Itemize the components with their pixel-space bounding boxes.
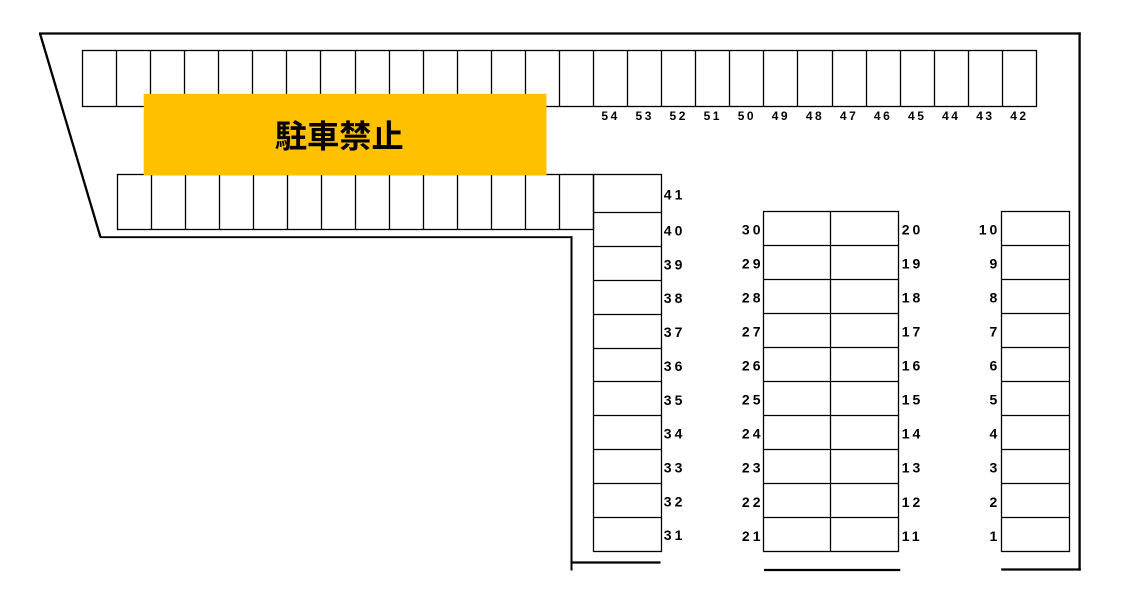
svg-text:16: 16 [902,358,924,374]
svg-text:32: 32 [664,493,686,509]
svg-text:42: 42 [1010,109,1028,123]
svg-text:10: 10 [979,222,1001,238]
svg-text:35: 35 [664,392,686,408]
svg-text:8: 8 [990,290,1001,306]
svg-text:36: 36 [664,358,686,374]
svg-text:51: 51 [704,109,722,123]
svg-text:53: 53 [636,109,654,123]
svg-text:29: 29 [742,256,764,272]
svg-text:17: 17 [902,324,924,340]
svg-text:23: 23 [742,460,764,476]
svg-text:46: 46 [874,109,892,123]
svg-text:39: 39 [664,256,686,272]
svg-text:49: 49 [772,109,790,123]
svg-text:20: 20 [902,222,924,238]
svg-text:25: 25 [742,392,764,408]
svg-text:6: 6 [990,358,1001,374]
svg-text:24: 24 [742,426,764,442]
svg-text:7: 7 [990,324,1001,340]
svg-text:33: 33 [664,460,686,476]
svg-text:31: 31 [664,527,686,543]
svg-text:30: 30 [742,222,764,238]
svg-text:22: 22 [742,494,764,510]
svg-text:54: 54 [601,109,619,123]
svg-text:9: 9 [990,256,1001,272]
svg-text:40: 40 [664,223,686,239]
svg-text:2: 2 [990,494,1001,510]
svg-text:18: 18 [902,290,924,306]
svg-text:48: 48 [806,109,824,123]
svg-text:4: 4 [990,426,1001,442]
svg-text:45: 45 [908,109,926,123]
svg-text:26: 26 [742,358,764,374]
svg-text:50: 50 [738,109,756,123]
svg-text:28: 28 [742,290,764,306]
svg-text:34: 34 [664,426,686,442]
svg-text:12: 12 [902,494,924,510]
svg-text:43: 43 [976,109,994,123]
svg-text:15: 15 [902,392,924,408]
svg-text:3: 3 [990,460,1001,476]
svg-text:52: 52 [670,109,688,123]
svg-text:1: 1 [990,528,1001,544]
svg-text:38: 38 [664,290,686,306]
svg-text:44: 44 [942,109,960,123]
svg-text:11: 11 [902,528,923,544]
svg-text:13: 13 [902,460,924,476]
svg-text:47: 47 [840,109,858,123]
svg-text:14: 14 [902,426,924,442]
svg-text:41: 41 [664,186,686,202]
svg-text:37: 37 [664,324,686,340]
svg-text:5: 5 [990,392,1001,408]
svg-text:19: 19 [902,256,924,272]
svg-text:21: 21 [742,528,764,544]
svg-text:27: 27 [742,324,764,340]
